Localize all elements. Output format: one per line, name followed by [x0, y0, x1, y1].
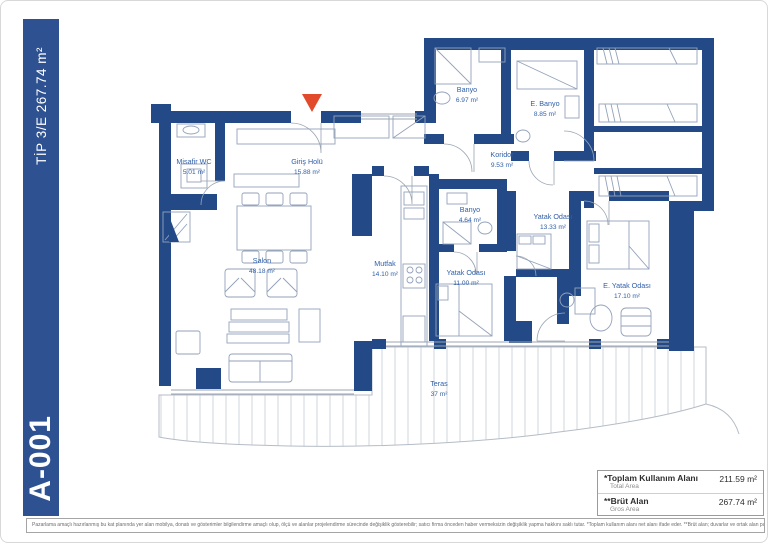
- room-label-salon: Salon: [253, 256, 271, 265]
- room-label-yatak-odasi-1: Yatak Odası: [533, 212, 572, 221]
- entrance-marker-icon: [302, 94, 322, 112]
- room-label-e-yatak-odasi: E. Yatak Odası: [603, 281, 651, 290]
- walls: [151, 38, 714, 394]
- terrace: [159, 347, 739, 446]
- unit-code-label: A-001: [24, 415, 58, 502]
- room-area-giris-holu: 15.88 m²: [294, 169, 321, 176]
- total-area-sublabel: Total Area: [604, 483, 698, 491]
- floor-plan-page: TİP 3/E 267.74 m² A-001: [0, 0, 768, 543]
- room-area-misafir-wc: 5.01 m²: [183, 169, 206, 176]
- room-area-yatak-odasi-1: 13.33 m²: [540, 224, 567, 231]
- total-area-label: *Toplam Kullanım Alanı: [604, 473, 698, 483]
- room-label-misafir-wc: Misafir WC: [176, 157, 211, 166]
- room-label-mutfak: Mutfak: [374, 259, 396, 268]
- disclaimer-text: Pazarlama amaçlı hazırlanmış bu kat plan…: [26, 518, 765, 533]
- room-area-teras: 37 m²: [431, 391, 449, 398]
- room-label-yatak-odasi-2: Yatak Odası: [446, 268, 485, 277]
- room-label-e-banyo: E. Banyo: [530, 99, 559, 108]
- room-label-teras: Teras: [430, 379, 448, 388]
- gross-area-sublabel: Gros Area: [604, 506, 649, 514]
- room-area-banyo-2: 4.64 m²: [459, 217, 482, 224]
- area-summary-table: *Toplam Kullanım Alanı Total Area 211.59…: [597, 470, 764, 516]
- room-label-banyo-1: Banyo: [457, 85, 477, 94]
- gross-area-value: 267.74 m²: [719, 496, 757, 507]
- sidebar: TİP 3/E 267.74 m² A-001: [23, 19, 59, 516]
- room-area-e-banyo: 8.85 m²: [534, 111, 557, 118]
- table-row-total-area: *Toplam Kullanım Alanı Total Area 211.59…: [598, 471, 763, 493]
- total-area-value: 211.59 m²: [719, 473, 757, 484]
- room-area-koridor: 9.53 m²: [491, 162, 514, 169]
- unit-type-label: TİP 3/E 267.74 m²: [34, 47, 49, 165]
- room-area-e-yatak-odasi: 17.10 m²: [614, 293, 641, 300]
- room-area-mutfak: 14.10 m²: [372, 271, 399, 278]
- room-area-yatak-odasi-2: 11.00 m²: [453, 280, 479, 287]
- room-label-koridor: Koridor: [490, 150, 514, 159]
- table-row-gross-area: **Brüt Alan Gros Area 267.74 m²: [598, 493, 763, 516]
- room-label-giris-holu: Giriş Holü: [291, 157, 323, 166]
- door-arcs: [201, 123, 609, 341]
- room-area-banyo-1: 6.97 m²: [456, 97, 479, 104]
- gross-area-label: **Brüt Alan: [604, 496, 649, 506]
- floor-plan-drawing: Misafir WC 5.01 m² Giriş Holü 15.88 m² B…: [129, 16, 741, 486]
- room-area-salon: 48.18 m²: [249, 268, 276, 275]
- room-label-banyo-2: Banyo: [460, 205, 480, 214]
